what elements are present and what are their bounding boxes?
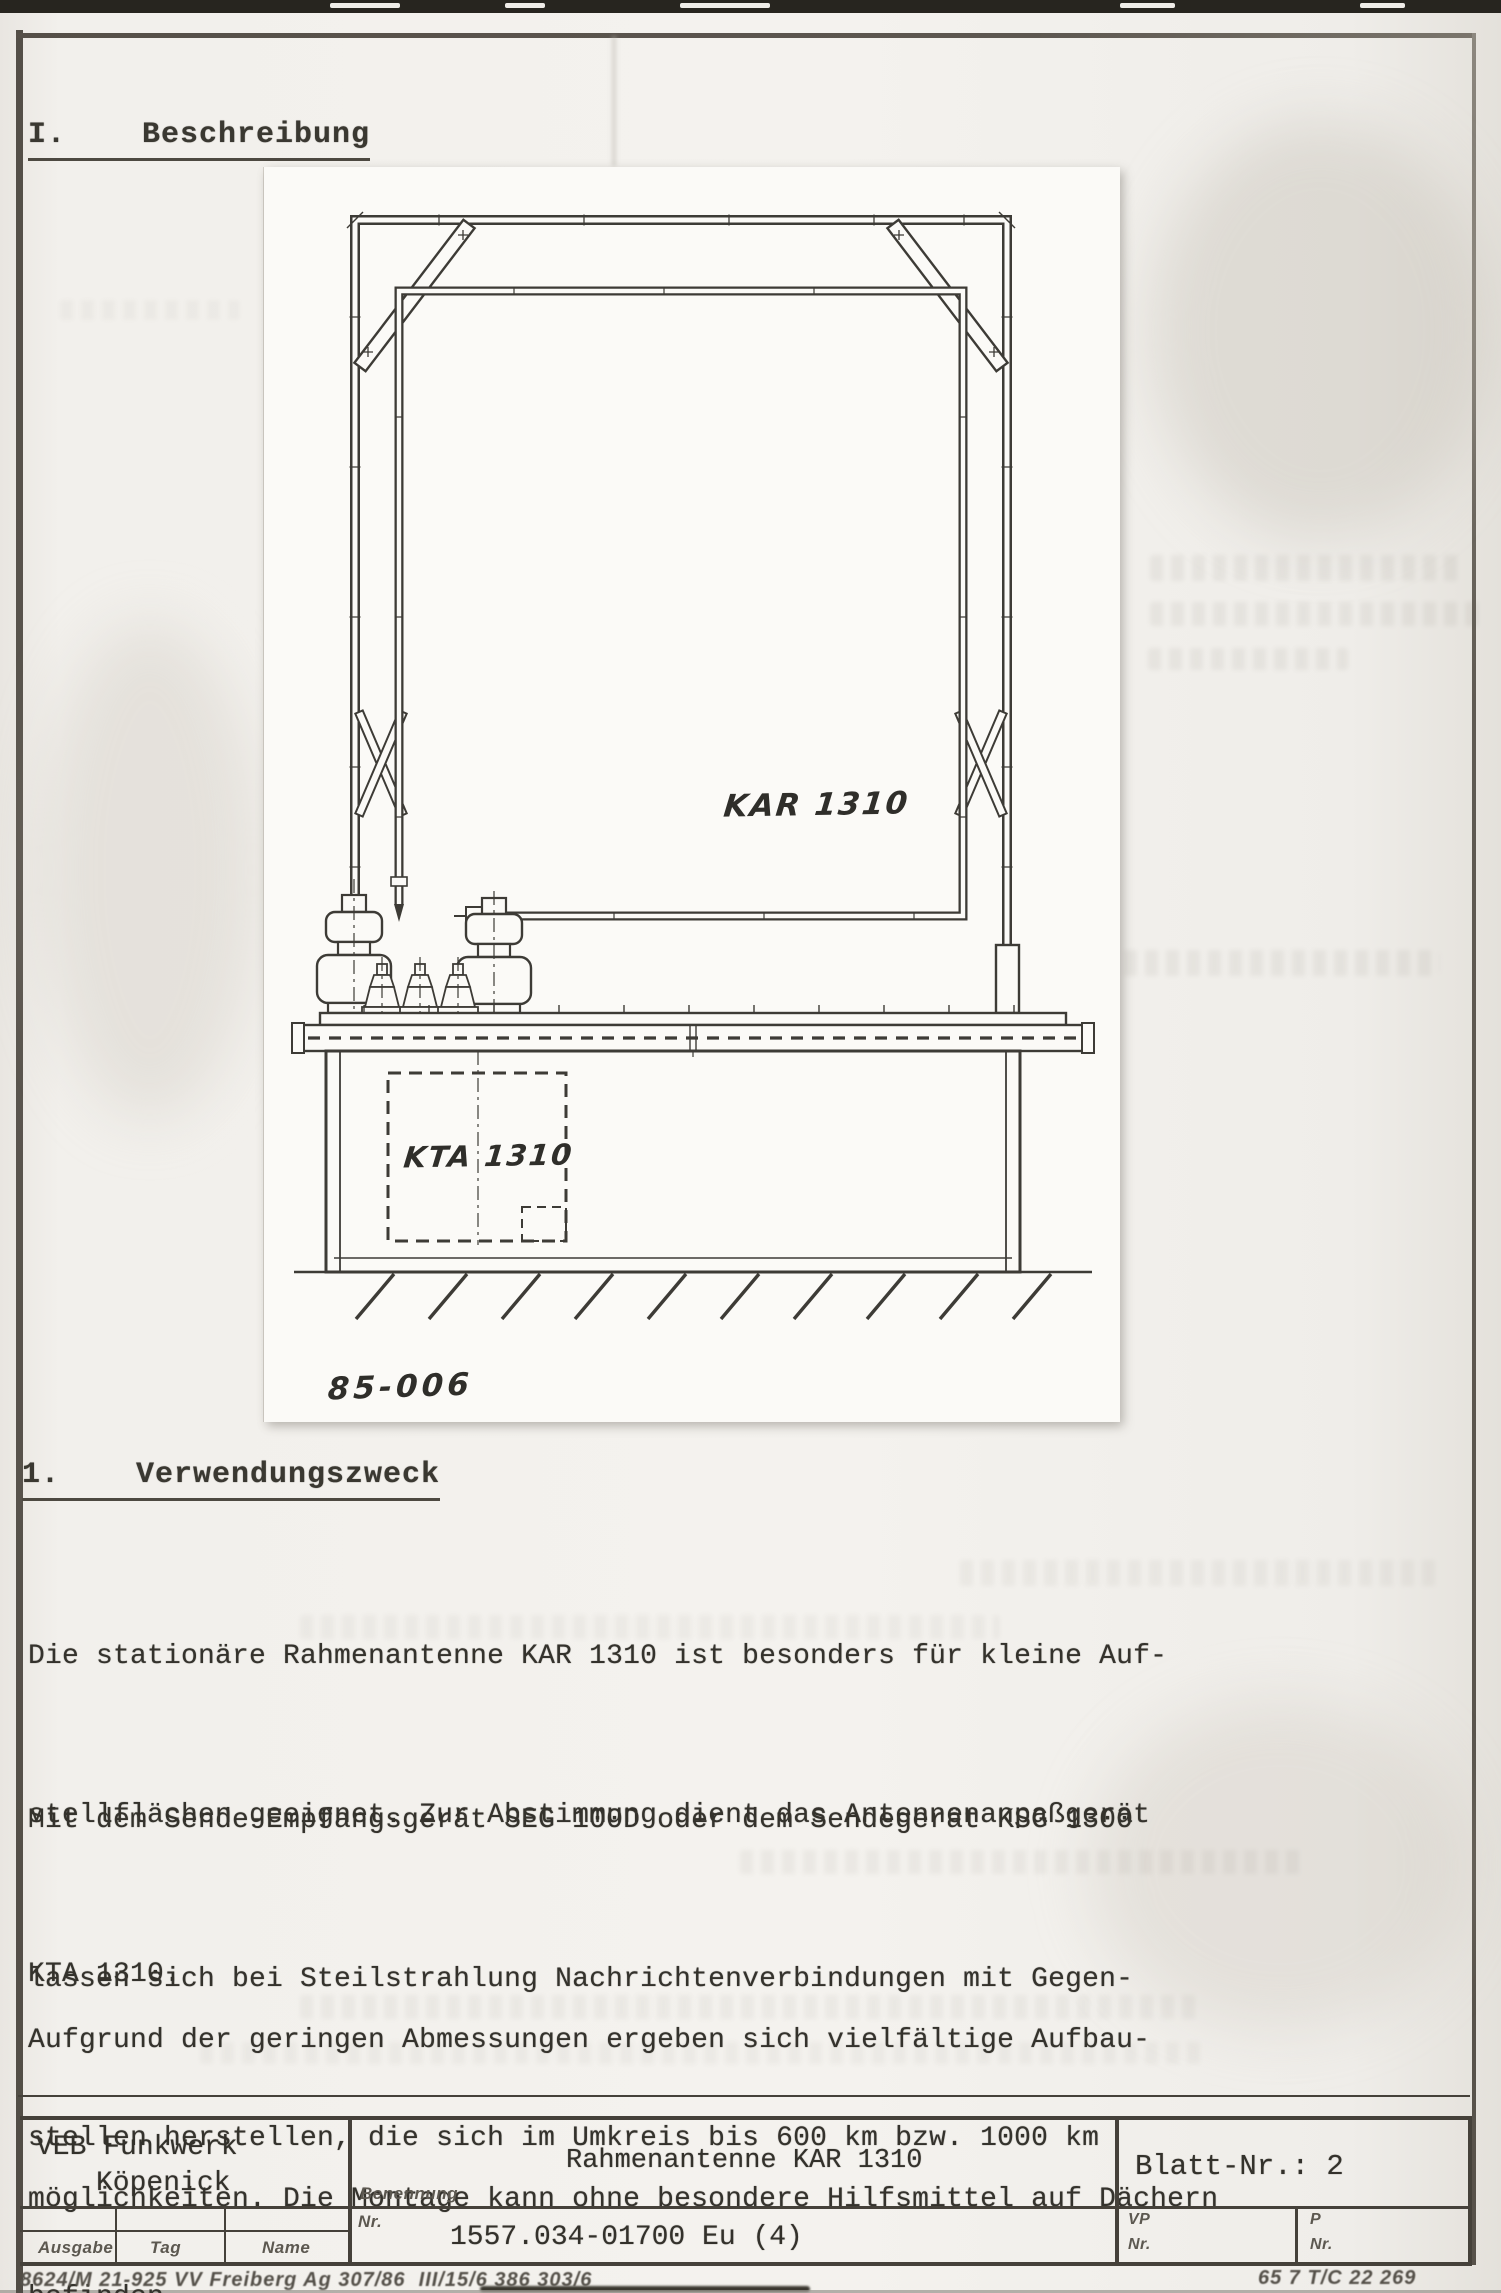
figure-label-kta-1310: KTA 1310 (402, 1138, 575, 1175)
nr-value: 1557.034-01700 Eu (4) (450, 2222, 803, 2253)
company-name-line2: Köpenick (96, 2168, 230, 2199)
title-block-rule (224, 2207, 226, 2266)
figure-photo: KAR 1310 KTA 1310 85-006 (264, 167, 1120, 1422)
vp-label-line1: VP (1128, 2211, 1150, 2229)
section-heading-beschreibung: I. Beschreibung (28, 118, 370, 161)
scan-edge-mark (1120, 3, 1175, 8)
figure-caption-number: 85-006 (327, 1366, 474, 1407)
p-label-line1: P (1310, 2211, 1321, 2229)
tag-label: Tag (150, 2238, 181, 2258)
bleed-through-artifact (1150, 602, 1480, 626)
title-block-rule (348, 2116, 352, 2266)
page-border-left (16, 30, 23, 2293)
bleed-through-artifact (1150, 555, 1460, 581)
figure-label-kar-1310: KAR 1310 (722, 785, 911, 824)
nr-label: Nr. (358, 2212, 382, 2232)
vp-label-line2: Nr. (1128, 2236, 1151, 2254)
scan-edge-mark (680, 3, 770, 8)
ausgabe-label: Ausgabe (38, 2238, 113, 2258)
print-shop-note-left: 8624/M 21-925 VV Freiberg Ag 307/86 III/… (20, 2269, 592, 2292)
section-heading-verwendungszweck: 1. Verwendungszweck (22, 1458, 440, 1501)
blatt-nr-value: Blatt-Nr.: 2 (1135, 2150, 1344, 2183)
scan-edge-mark (505, 3, 545, 8)
title-block-rule (20, 2230, 348, 2232)
paper-crease (612, 36, 616, 166)
company-name-line1: VEB Funkwerk (36, 2132, 238, 2163)
scan-edge-top (0, 0, 1501, 13)
cabinet (292, 1005, 1094, 1272)
p-label-line2: Nr. (1310, 2236, 1333, 2254)
print-shop-note-right: 65 7 T/C 22 269 (1258, 2267, 1416, 2290)
bleed-through-artifact (1148, 648, 1348, 670)
benennung-label: Benennung (360, 2184, 458, 2204)
title-block-rule (1115, 2116, 1119, 2266)
paper-shading (1150, 120, 1490, 540)
text-line: Aufgrund der geringen Abmessungen ergebe… (28, 2014, 1218, 2067)
center-lines (354, 879, 693, 1245)
scanned-document-page: I. Beschreibung (0, 0, 1501, 2293)
name-label: Name (262, 2238, 310, 2258)
title-block-rule (18, 2095, 1470, 2097)
corner-braces (354, 220, 1007, 817)
title-block-rule (1468, 2116, 1472, 2266)
outer-frame (347, 212, 1015, 945)
title-block-rule (20, 2262, 1472, 2266)
scan-edge-mark (1360, 3, 1405, 8)
text-line: Mit dem Sende-Empfangsgerät SEG 100D ode… (28, 1794, 1133, 1847)
scan-edge-mark (330, 3, 400, 8)
page-border-top (16, 33, 1472, 38)
bleed-through-artifact (60, 300, 240, 320)
title-block-rule (115, 2207, 117, 2266)
title-block-rule (20, 2206, 1472, 2209)
antenna-drawing (264, 167, 1120, 1422)
paper-shading (40, 620, 260, 1120)
text-line: Die stationäre Rahmenantenne KAR 1310 is… (28, 1630, 1167, 1683)
ground-hatching (294, 1272, 1092, 1319)
inner-frame (391, 287, 968, 925)
title-block-rule (20, 2116, 1472, 2120)
benennung-value: Rahmenantenne KAR 1310 (566, 2146, 922, 2176)
title-block-rule (1295, 2207, 1298, 2266)
